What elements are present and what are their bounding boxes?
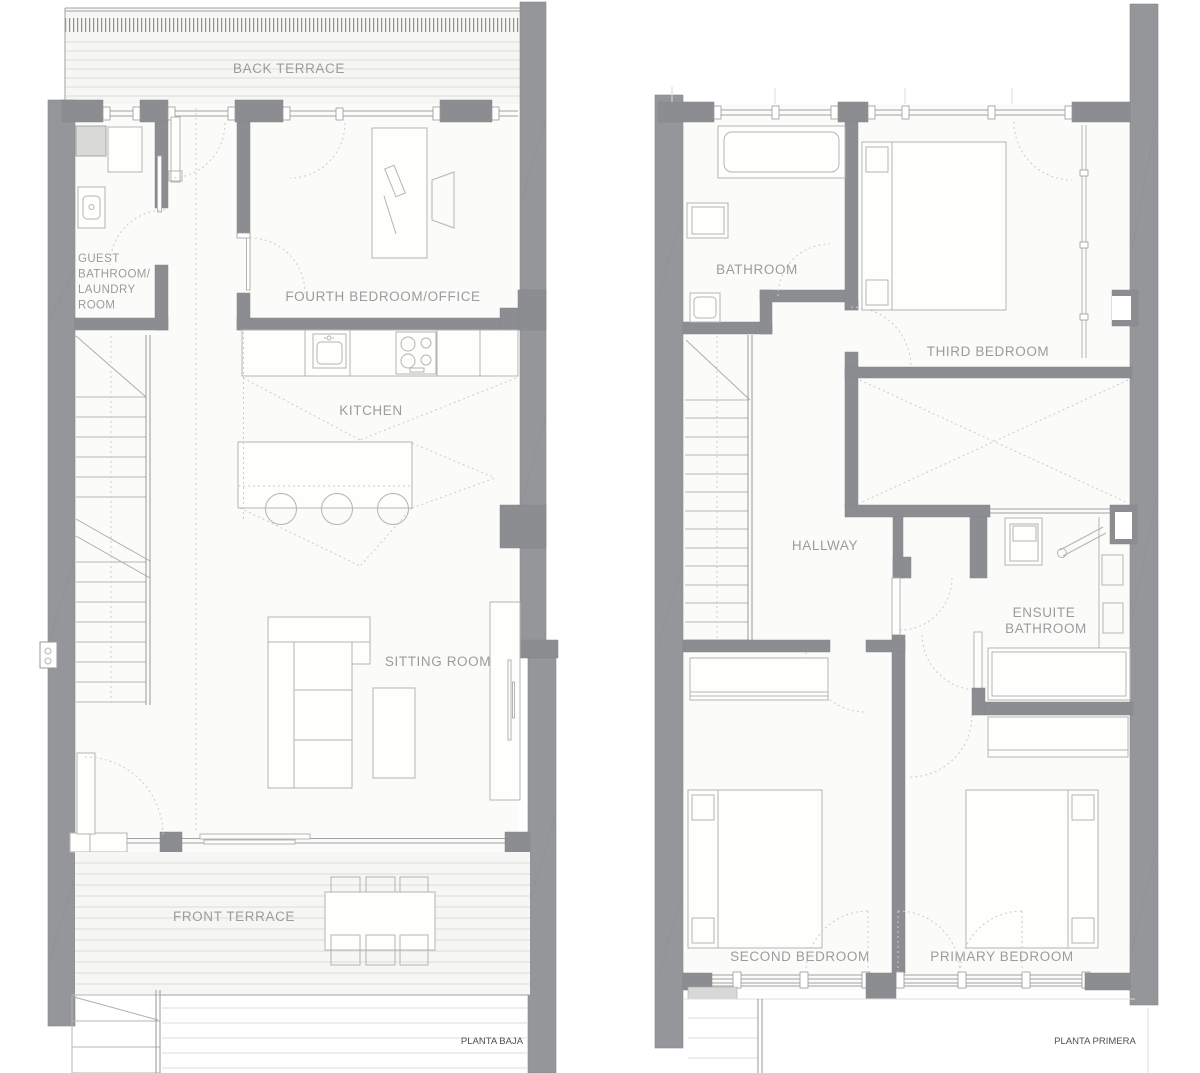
second-bedroom-top-wall <box>683 640 830 652</box>
kitchen-island <box>238 442 412 508</box>
right-party-wall-lower <box>528 658 556 1073</box>
back-terrace-label: BACK TERRACE <box>233 61 345 76</box>
chimney-block <box>518 290 546 330</box>
ensuite-label-2: BATHROOM <box>1005 621 1087 636</box>
sliding-door-leaf <box>171 117 180 182</box>
chimney-step <box>500 308 520 330</box>
second-bedroom-label: SECOND BEDROOM <box>730 949 870 964</box>
sofa-cushion <box>352 642 370 664</box>
sofa-arm <box>268 642 294 788</box>
ensuite-label-1: ENSUITE <box>1013 605 1076 620</box>
bathroom-sink <box>687 203 728 238</box>
dryer <box>76 126 106 156</box>
third-bedroom-label: THIRD BEDROOM <box>927 344 1050 359</box>
party-wall-step <box>518 640 558 658</box>
sitting-room-label: SITTING ROOM <box>385 654 491 669</box>
entry-steps <box>72 995 160 1073</box>
guest-bath-label-2: BATHROOM/ <box>78 269 151 281</box>
washing-machine <box>78 187 105 228</box>
outdoor-table <box>325 892 435 950</box>
third-bedroom-bottom-wall <box>845 367 1132 378</box>
hallway-label: HALLWAY <box>792 538 858 553</box>
guest-bath-label-1: GUEST <box>78 253 120 265</box>
ensuite-sink <box>1005 518 1042 565</box>
guest-bath-label-3: LAUNDRY <box>78 284 136 296</box>
laundry-counter <box>108 127 142 172</box>
ground-street-edge: PLANTA BAJA <box>72 990 528 1073</box>
sliding-panel <box>204 840 295 844</box>
bathroom-right-wall <box>845 122 858 310</box>
bathroom-bottom-wall <box>683 322 772 334</box>
thin-wall <box>892 578 900 635</box>
fireplace-block <box>500 505 546 548</box>
sliding-panel <box>200 834 310 839</box>
kitchen-counter <box>242 330 518 376</box>
bathroom-label: BATHROOM <box>716 262 798 277</box>
fourth-bedroom-label: FOURTH BEDROOM/OFFICE <box>285 289 480 304</box>
double-bed <box>862 142 1006 310</box>
back-terrace: BACK TERRACE <box>65 8 520 104</box>
coffee-table <box>373 688 415 778</box>
right-party-wall <box>1130 4 1158 1005</box>
guest-bath-bottom-wall <box>75 318 168 330</box>
primary-bedroom-label: PRIMARY BEDROOM <box>930 949 1074 964</box>
closet-bottom-wall <box>845 505 990 517</box>
entry-threshold <box>70 833 127 852</box>
pocket-door-panel <box>158 156 162 212</box>
guest-bath-label-4: ROOM <box>78 300 115 312</box>
built-in-closet <box>690 658 828 700</box>
sliding-door-stack <box>160 832 182 852</box>
first-street-edge: PLANTA PRIMERA <box>683 999 1148 1073</box>
front-terrace-label: FRONT TERRACE <box>173 909 295 924</box>
ground-floor-plan: BACK TERRACE <box>40 2 558 1073</box>
double-bed <box>688 790 822 948</box>
ensuite-door-leaf <box>974 632 982 690</box>
center-pier <box>866 973 896 999</box>
first-floor-plan: BATHROOM THIRD BEDROOM <box>655 4 1158 1073</box>
ground-plan-title: PLANTA BAJA <box>461 1036 524 1047</box>
parapet <box>688 987 737 999</box>
ensuite-bottom-wall <box>985 702 1133 715</box>
bathtub <box>718 126 845 178</box>
sofa-seats <box>294 642 352 788</box>
front-terrace: FRONT TERRACE <box>75 852 530 995</box>
left-party-wall <box>48 100 75 1026</box>
door-jamb-line <box>247 238 251 290</box>
entry-door-leaf <box>77 753 95 834</box>
bedroom-left-wall <box>237 122 250 233</box>
double-bed <box>966 790 1098 948</box>
fitted-wardrobe <box>988 717 1128 757</box>
shower-tray <box>988 648 1130 700</box>
floorplan-sheet: BACK TERRACE <box>0 0 1200 1073</box>
desk <box>372 128 427 258</box>
tv-console <box>490 602 520 800</box>
left-party-wall <box>655 95 683 1048</box>
kitchen-label: KITCHEN <box>339 403 402 418</box>
first-plan-title: PLANTA PRIMERA <box>1054 1036 1136 1047</box>
bedroom-bottom-wall <box>237 318 500 330</box>
sofa-back <box>268 617 370 642</box>
